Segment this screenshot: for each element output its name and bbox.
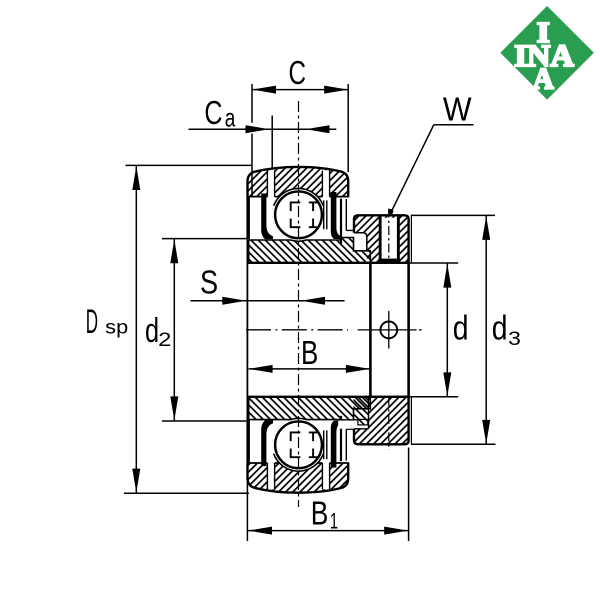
svg-text:C: C bbox=[204, 94, 222, 131]
svg-text:sp: sp bbox=[105, 317, 128, 339]
svg-text:D: D bbox=[86, 303, 98, 341]
svg-text:2: 2 bbox=[158, 329, 171, 351]
svg-text:B: B bbox=[311, 495, 329, 532]
svg-text:1: 1 bbox=[330, 509, 338, 534]
svg-text:d: d bbox=[453, 310, 469, 348]
svg-text:B: B bbox=[301, 334, 318, 371]
svg-text:d: d bbox=[145, 312, 159, 350]
svg-text:A: A bbox=[533, 63, 554, 96]
svg-text:d: d bbox=[492, 310, 508, 348]
svg-text:3: 3 bbox=[508, 329, 521, 350]
svg-text:C: C bbox=[289, 54, 307, 91]
svg-text:a: a bbox=[225, 103, 236, 133]
svg-text:S: S bbox=[200, 263, 218, 300]
svg-text:W: W bbox=[443, 91, 472, 128]
